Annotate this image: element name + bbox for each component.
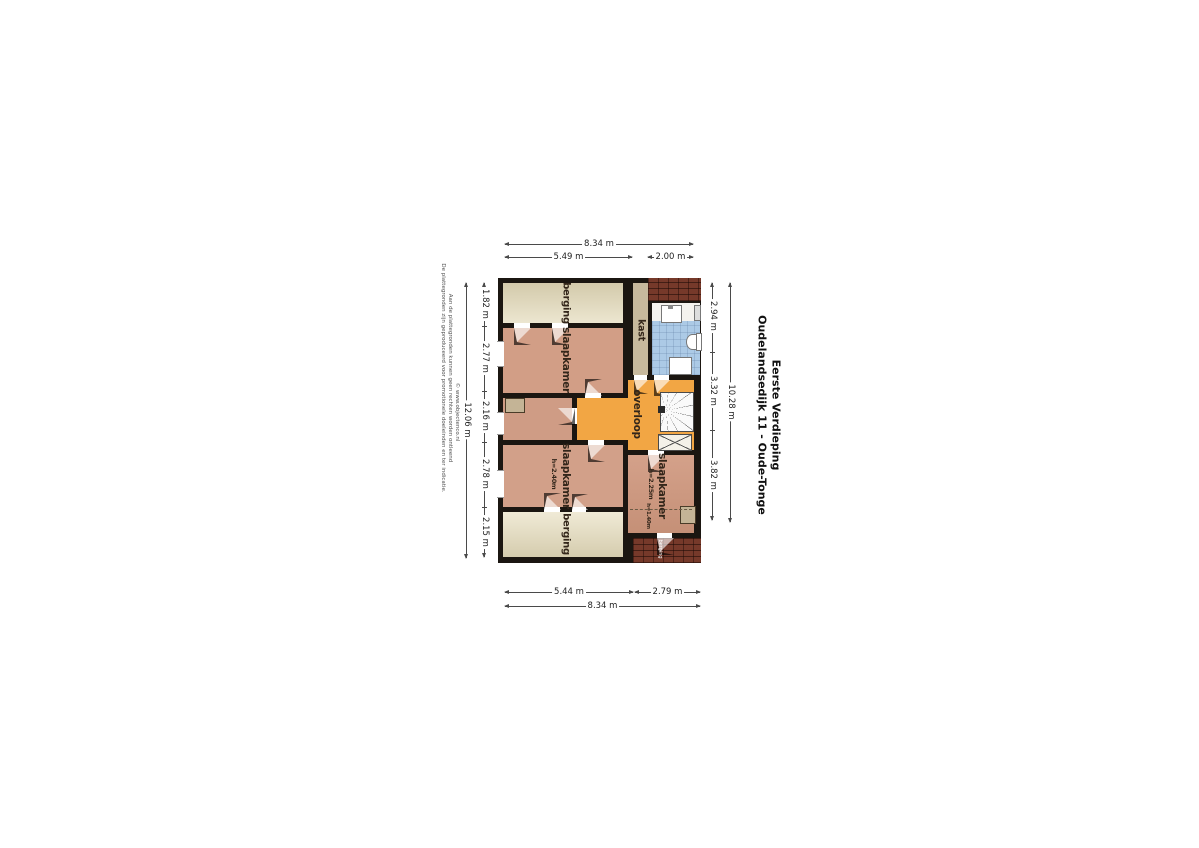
dim-label: 8.34 m [582, 239, 616, 249]
dim-label: 2.79 m [651, 587, 685, 597]
dim-label: 5.44 m [552, 587, 586, 597]
dim-label: 2.15 m [480, 515, 490, 549]
stair-newel-post [658, 406, 665, 413]
label-overloop: overloop [631, 389, 643, 439]
label-slaapkamer-left-height: h=2.40m [550, 459, 558, 490]
dim-top-seg-1: 5.49 m [505, 257, 632, 258]
dim-label: 3.32 m [708, 374, 718, 408]
door-swing [558, 408, 575, 425]
dim-label: 2.94 m [708, 299, 718, 333]
void-hatch [658, 434, 692, 451]
disclaimer-line-2: Aan de plattegronden kunnen geen rechten… [447, 294, 453, 462]
dim-tick [482, 326, 487, 327]
dim-label: 2.78 m [480, 457, 490, 491]
dim-tick [482, 442, 487, 443]
dim-label: 1.82 m [480, 287, 490, 321]
dim-bottom-seg-1: 5.44 m [505, 592, 633, 593]
disclaimer-line-3: © www.objectenco.nl [454, 383, 460, 442]
label-knee-wall-height: h=1.40m [645, 503, 651, 529]
shower-tray [669, 357, 692, 375]
dim-label: 2.00 m [654, 252, 688, 262]
dim-top-seg-2: 2.00 m [648, 257, 693, 258]
dim-label: 8.34 m [586, 601, 620, 611]
dim-tick [482, 391, 487, 392]
disclaimer-line-1: De plattegronden zijn geproduceerd voor … [440, 263, 446, 492]
dim-label: 3.82 m [708, 458, 718, 492]
page-subtitle: Eerste Verdieping [770, 360, 783, 471]
floorplan-page: Oudelandsedijk 11 - Oude-Tonge Eerste Ve… [0, 0, 1199, 848]
label-berging-bottom: berging [561, 513, 572, 555]
label-slaapkamer-right: slaapkamer [656, 453, 668, 519]
window [497, 470, 504, 498]
dim-label: 12.06 m [462, 400, 472, 439]
dim-label: 10.28 m [726, 382, 736, 421]
window [497, 412, 504, 435]
dim-tick [482, 507, 487, 508]
page-title: Oudelandsedijk 11 - Oude-Tonge [756, 315, 769, 515]
window [497, 341, 504, 367]
label-berging-roof: berging [657, 539, 663, 558]
dim-tick [710, 430, 715, 431]
door-swing [544, 493, 561, 510]
label-slaapkamer-right-height: h=2.25m [647, 469, 655, 500]
label-kast: kast [636, 319, 647, 341]
dim-label: 5.49 m [552, 252, 586, 262]
door-swing [514, 328, 531, 345]
label-berging-top: berging [561, 282, 572, 324]
dormer-box [505, 398, 525, 413]
dim-right-total: 10.28 m [730, 283, 731, 522]
dim-left-chain: 1.82 m 2.77 m 2.16 m 2.78 m 2.15 m [484, 283, 485, 557]
label-slaapkamer-top: slaapkamer [560, 327, 572, 393]
dim-label: 2.16 m [480, 399, 490, 433]
dim-top-total: 8.34 m [505, 244, 693, 245]
label-slaapkamer-left: slaapkamer [560, 443, 572, 509]
door-swing [572, 494, 588, 510]
dim-tick [710, 352, 715, 353]
radiator [694, 305, 701, 321]
dim-right-chain: 2.94 m 3.32 m 3.82 m [712, 283, 713, 520]
toilet-tank [696, 333, 702, 351]
staircase [660, 392, 694, 432]
dim-label: 2.77 m [480, 341, 490, 375]
door-swing [588, 445, 605, 462]
roof-brick-top [648, 278, 701, 301]
dim-bottom-seg-2: 2.79 m [635, 592, 700, 593]
sink-tap [668, 305, 673, 309]
dim-bottom-total: 8.34 m [505, 606, 700, 607]
dim-left-total: 12.06 m [466, 283, 467, 558]
room-overloop-extension [577, 398, 628, 440]
door-swing [585, 379, 602, 396]
